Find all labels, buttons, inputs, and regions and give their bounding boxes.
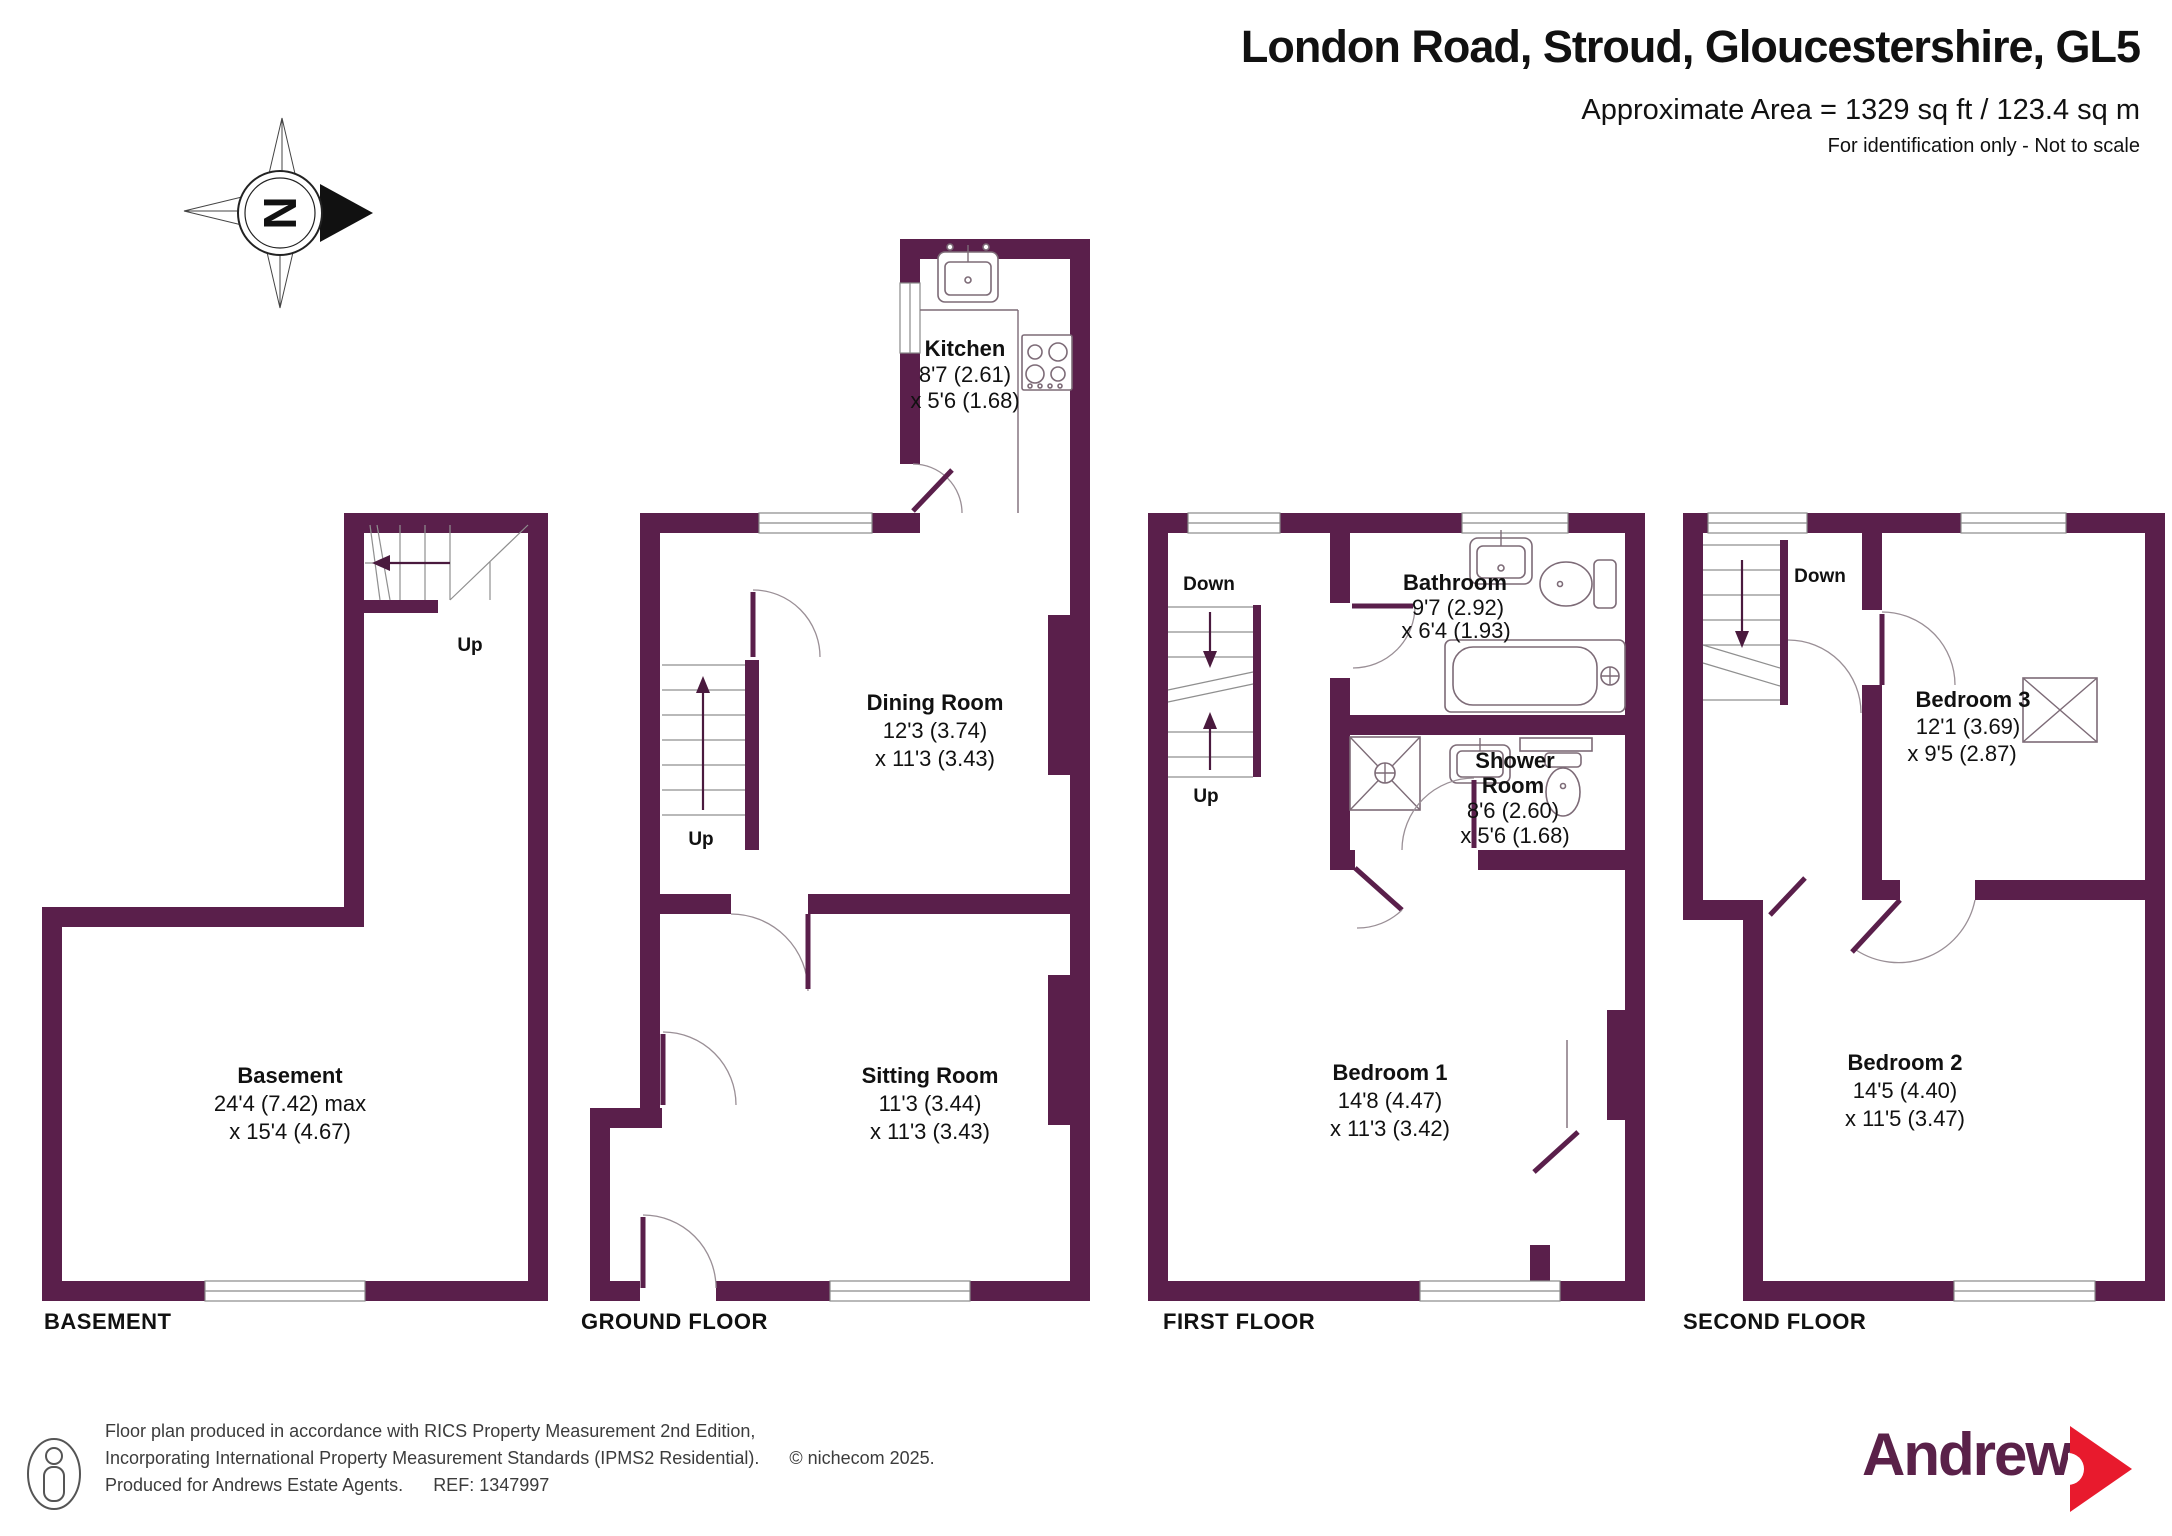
sink-icon [938,244,998,302]
window [1708,513,2095,1301]
room-name: Sitting Room [862,1063,999,1088]
staircase [365,525,528,600]
room-name: Basement [237,1063,343,1088]
floor-label-basement: BASEMENT [44,1309,172,1334]
brand-name: Andrews [1862,1421,2101,1488]
first-floor-plan: Down Up [1148,513,1645,1334]
footer: Floor plan produced in accordance with R… [105,1418,935,1499]
second-walls [1683,513,2165,1301]
room-dim: 14'8 (4.47) [1338,1088,1443,1113]
window [205,1281,365,1301]
room-name: Kitchen [925,336,1006,361]
basement-plan: Up Basement 24'4 (7.42) max x 15'4 (4.67… [42,513,548,1334]
footer-line2-text: Incorporating International Property Mea… [105,1448,759,1468]
room-dim: 11'3 (3.44) [879,1091,982,1116]
skylight-icon [2023,678,2097,742]
brand-logo: Andrews [1862,1420,2101,1489]
stair-up-label: Up [1193,786,1218,807]
room-dim: x 9'5 (2.87) [1907,741,2016,766]
room-dim: x 5'6 (1.68) [910,388,1019,413]
footer-line2: Incorporating International Property Mea… [105,1445,935,1472]
room-name: Bedroom 3 [1916,687,2031,712]
window [1188,513,1568,1301]
floorplan-drawing: N [0,0,2172,1536]
staircase [1168,607,1253,777]
footer-line3: Produced for Andrews Estate Agents.REF: … [105,1472,935,1499]
room-name: Dining Room [867,690,1004,715]
footer-ref: REF: 1347997 [433,1475,549,1495]
brand-arrow-icon [2068,1424,2134,1514]
bathtub-icon [1445,640,1625,712]
stair-down-label: Down [1794,566,1846,587]
basement-walls [42,513,548,1301]
shower-icon [1350,737,1420,810]
room-name: Bedroom 2 [1848,1050,1963,1075]
room-dim: x 15'4 (4.67) [229,1119,351,1144]
room-label-bedroom2: Bedroom 2 14'5 (4.40) x 11'5 (3.47) [1845,1050,1965,1131]
room-dim: x 11'3 (3.43) [870,1119,990,1144]
room-label-bedroom3: Bedroom 3 12'1 (3.69) x 9'5 (2.87) [1907,687,2030,766]
room-name: Bathroom [1403,570,1507,595]
room-dim: 12'3 (3.74) [883,718,988,743]
room-dim: x 11'3 (3.42) [1330,1116,1450,1141]
floor-label-ground: GROUND FLOOR [581,1309,768,1334]
second-floor-plan: Down Bedroom 3 12'1 (3.69) x 9'5 (2.87) [1683,513,2165,1334]
floor-label-first: FIRST FLOOR [1163,1309,1315,1334]
room-dim: 8'6 (2.60) [1467,798,1559,823]
footer-line1: Floor plan produced in accordance with R… [105,1418,935,1445]
staircase [662,665,745,815]
room-dim: 12'1 (3.69) [1916,714,2021,739]
floorplan-page: London Road, Stroud, Gloucestershire, GL… [0,0,2172,1536]
person-icon [26,1436,82,1512]
north-arrow [320,184,373,242]
room-dim: 9'7 (2.92) [1412,595,1504,620]
room-dim: 8'7 (2.61) [919,362,1011,387]
room-label-sitting: Sitting Room 11'3 (3.44) x 11'3 (3.43) [862,1063,999,1144]
hob-icon [1022,335,1072,390]
toilet-icon [1540,560,1616,608]
room-dim: 14'5 (4.40) [1853,1078,1958,1103]
staircase [1703,545,1780,700]
room-label-basement: Basement 24'4 (7.42) max x 15'4 (4.67) [214,1063,366,1144]
room-name: Room [1482,773,1544,798]
room-dim: x 11'3 (3.43) [875,746,995,771]
room-label-kitchen: Kitchen 8'7 (2.61) x 5'6 (1.68) [910,336,1019,413]
room-dim: x 6'4 (1.93) [1401,618,1510,643]
room-dim: 24'4 (7.42) max [214,1091,366,1116]
footer-copyright: © nichecom 2025. [789,1448,934,1468]
footer-line3-text: Produced for Andrews Estate Agents. [105,1475,403,1495]
stair-up-label: Up [457,635,482,656]
door-arc [643,464,962,1288]
stair-up-label: Up [688,829,713,850]
compass-north-label: N [254,196,306,229]
room-label-dining: Dining Room 12'3 (3.74) x 11'3 (3.43) [867,690,1004,771]
room-dim: x 5'6 (1.68) [1460,823,1569,848]
compass-icon: N [184,118,373,308]
room-name: Bedroom 1 [1333,1060,1448,1085]
room-label-bedroom1: Bedroom 1 14'8 (4.47) x 11'3 (3.42) [1330,1060,1450,1141]
window [759,283,970,1301]
stair-down-label: Down [1183,574,1235,595]
room-label-bathroom: Bathroom 9'7 (2.92) x 6'4 (1.93) [1401,570,1510,643]
ground-floor-plan: Up Kitchen 8'7 (2.61) x 5'6 (1.68) Dinin… [581,239,1090,1334]
floor-label-second: SECOND FLOOR [1683,1309,1866,1334]
room-name: Shower [1475,748,1555,773]
room-dim: x 11'5 (3.47) [1845,1106,1965,1131]
room-label-shower: Shower Room 8'6 (2.60) x 5'6 (1.68) [1460,748,1569,848]
